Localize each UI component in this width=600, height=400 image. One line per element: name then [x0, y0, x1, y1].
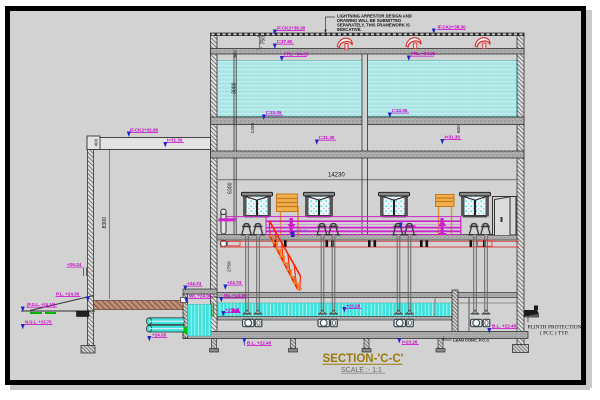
svg-text:+24.74: +24.74	[187, 281, 202, 286]
svg-text:IF.CK2+32.60: IF.CK2+32.60	[130, 128, 159, 133]
svg-text:6300: 6300	[228, 182, 234, 194]
svg-text:14230: 14230	[328, 173, 345, 179]
svg-text:750: 750	[261, 36, 267, 45]
svg-text:+24.55: +24.55	[152, 333, 167, 338]
svg-text:FRL +34.95: FRL +34.95	[411, 51, 436, 56]
svg-text:I=28.10: I=28.10	[296, 229, 308, 233]
svg-text:( PCC ) TYP.: ( PCC ) TYP.	[540, 330, 569, 337]
svg-text:+26.24: +26.24	[67, 262, 82, 267]
svg-text:400: 400	[94, 138, 99, 146]
svg-text:+28.00: +28.00	[404, 224, 417, 229]
svg-text:LEAN CONC. P.C.C.: LEAN CONC. P.C.C.	[453, 338, 490, 343]
svg-text:+23.28: +23.28	[225, 308, 240, 313]
svg-text:I=31.50: I=31.50	[167, 138, 183, 143]
svg-text:+24.74: +24.74	[227, 280, 242, 285]
svg-text:3000: 3000	[232, 82, 238, 94]
svg-text:FRL +34.95: FRL +34.95	[284, 52, 309, 57]
svg-text:IF.CK2+38.30: IF.CK2+38.30	[438, 25, 467, 30]
svg-text:B.L. +22.40: B.L. +22.40	[247, 341, 272, 346]
svg-text:(F.G.L. +24.10): (F.G.L. +24.10)	[27, 302, 56, 307]
svg-text:WL +24.06: WL +24.06	[224, 293, 247, 298]
svg-text:8300: 8300	[102, 217, 108, 229]
svg-text:I=23.26: I=23.26	[402, 340, 418, 345]
svg-text:B.L. +22.40: B.L. +22.40	[492, 324, 517, 329]
svg-text:I=37.60: I=37.60	[277, 39, 293, 44]
svg-text:+23.28: +23.28	[346, 304, 361, 309]
svg-text:INDICATIVE.: INDICATIVE.	[337, 27, 362, 32]
svg-text:WL +24.06: WL +24.06	[189, 294, 212, 299]
svg-text:P.L. +24.30: P.L. +24.30	[56, 292, 80, 297]
svg-text:300: 300	[233, 50, 238, 58]
svg-text:I=31.30: I=31.30	[319, 135, 335, 140]
svg-text:I=33.05: I=33.05	[392, 108, 408, 113]
svg-text:600: 600	[456, 125, 461, 133]
svg-text:2750: 2750	[227, 261, 233, 272]
svg-text:I=31.30: I=31.30	[445, 135, 461, 140]
svg-text:SECTION-'C-C': SECTION-'C-C'	[323, 353, 404, 365]
svg-text:N.G.L. +23.75: N.G.L. +23.75	[25, 320, 52, 325]
svg-text:I=33.05: I=33.05	[266, 110, 282, 115]
svg-text:IF.CK2+38.30: IF.CK2+38.30	[277, 26, 306, 31]
svg-text:1300: 1300	[250, 122, 256, 133]
